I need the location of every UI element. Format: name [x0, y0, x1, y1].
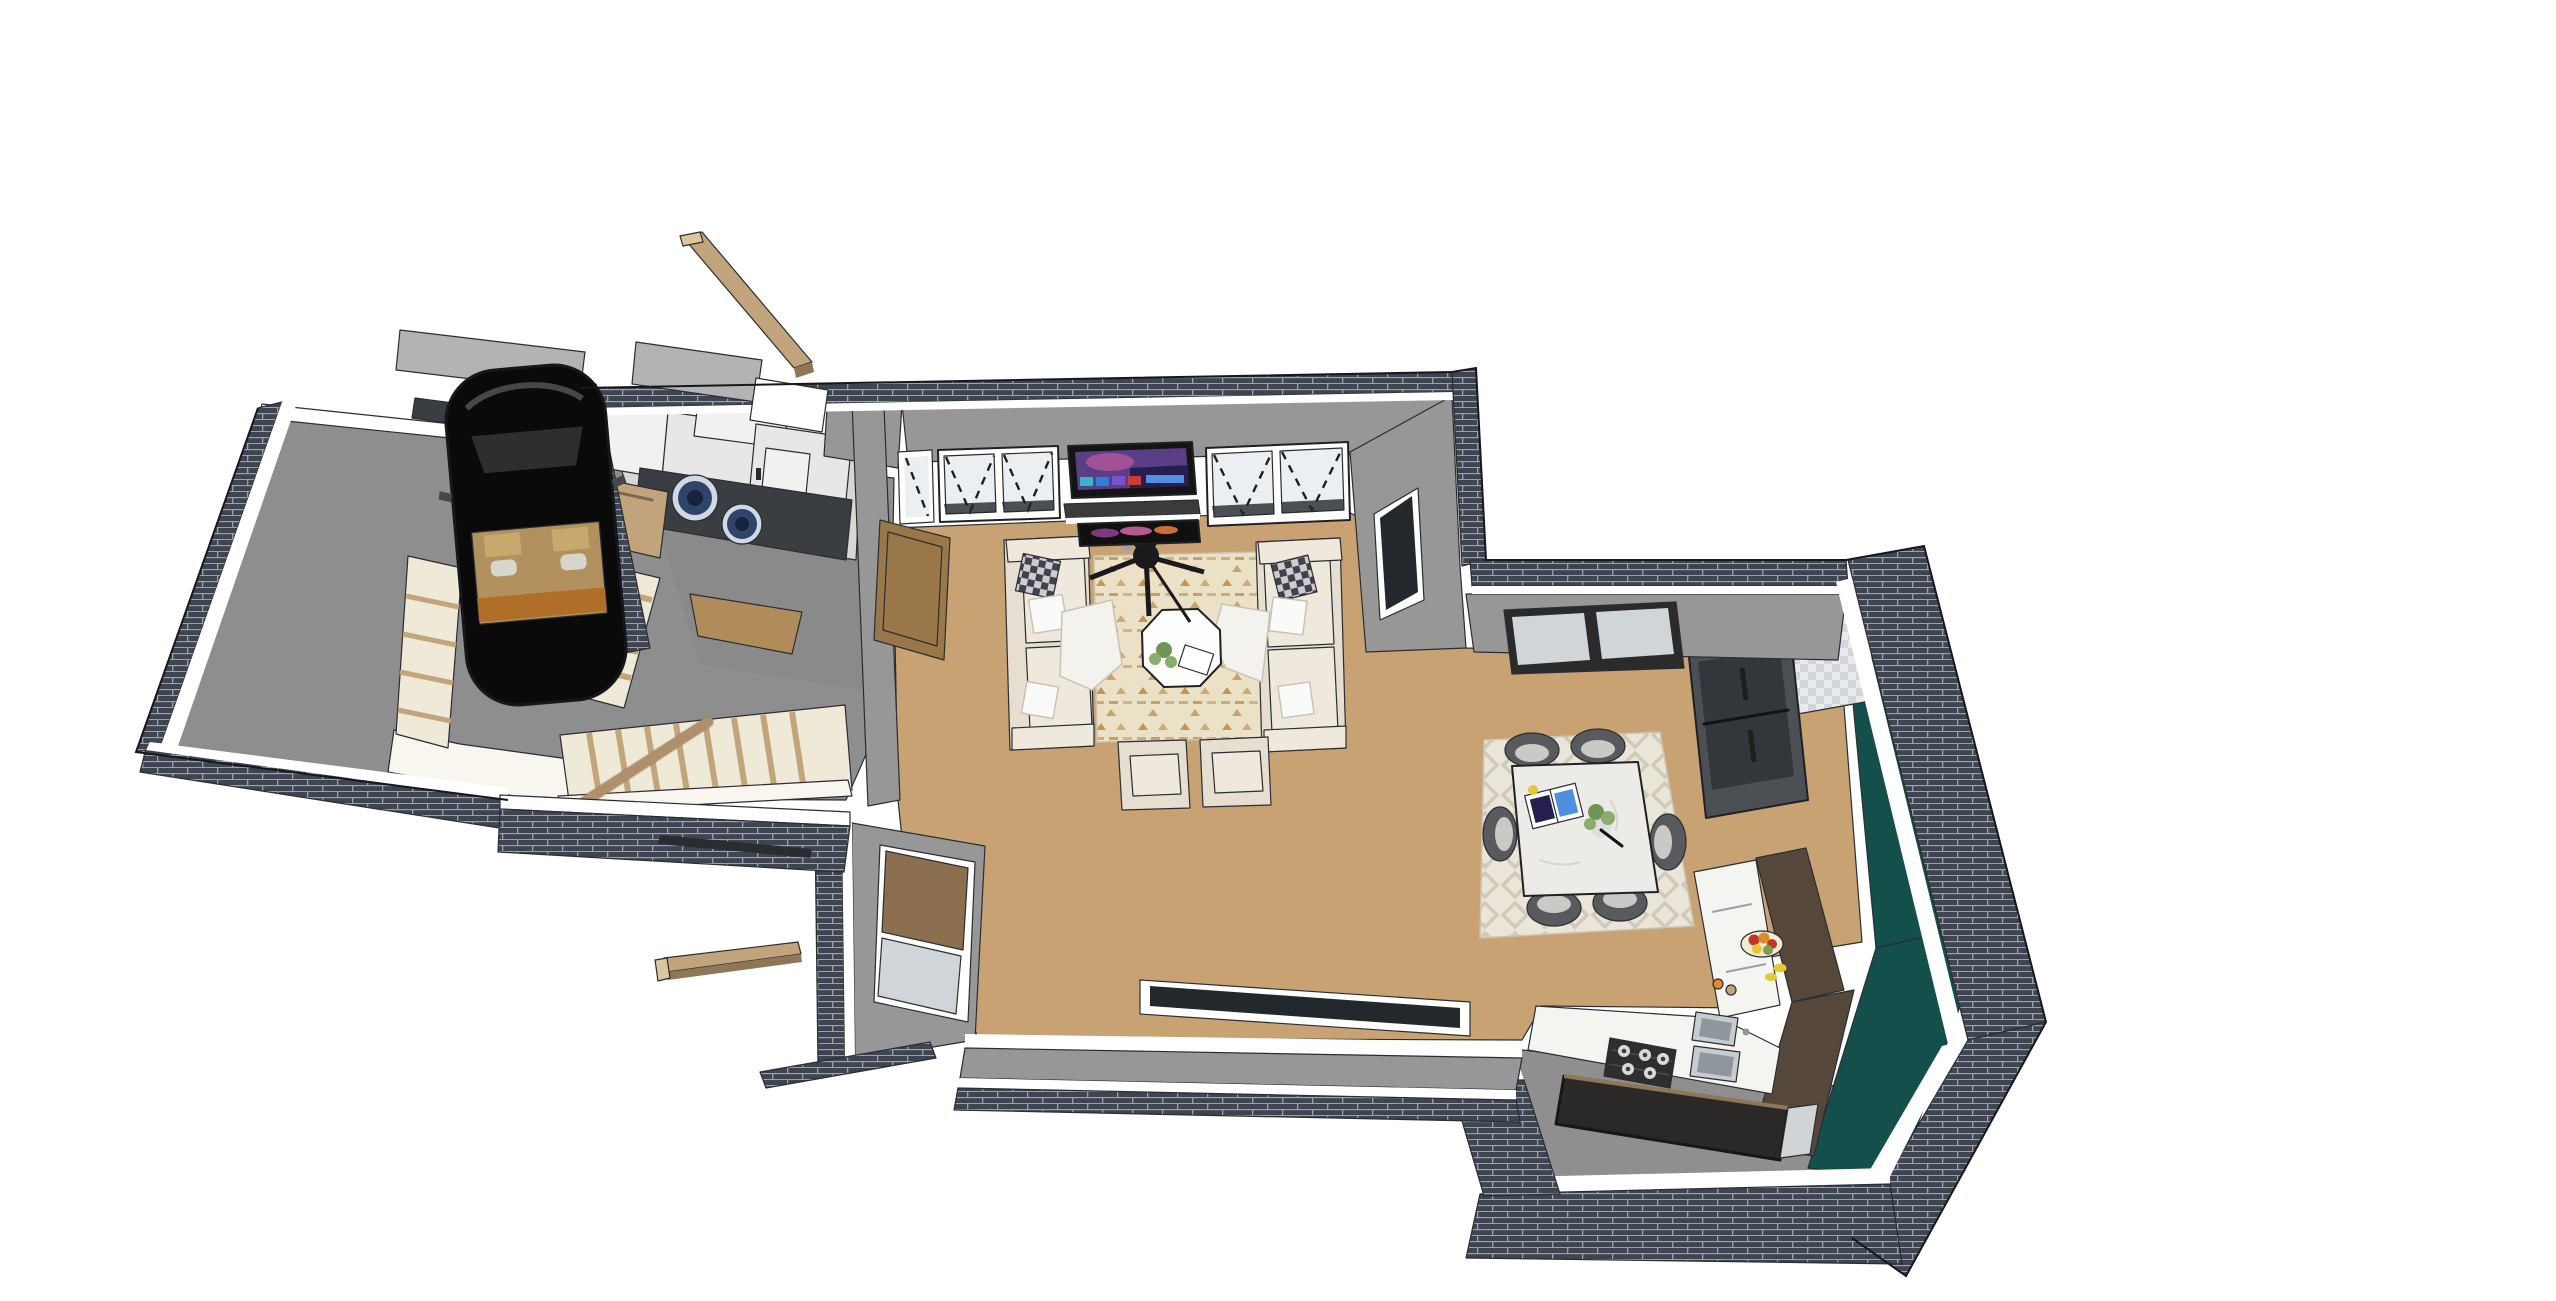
chair-seat — [1581, 740, 1615, 758]
spice-jar-1 — [1713, 979, 1723, 989]
dining-north-brick — [1470, 560, 1848, 586]
dining-window-glass — [1512, 613, 1590, 665]
dining-north-trim — [1472, 586, 1848, 594]
beam-top-face — [682, 232, 812, 368]
lemon-loose-2 — [1765, 973, 1777, 981]
car-seatback-left — [484, 532, 522, 557]
fridge-door — [1698, 648, 1794, 790]
burner-center — [1622, 1049, 1627, 1054]
tv-app-tile — [1128, 476, 1141, 485]
window-partial-left — [898, 450, 934, 524]
flame-pink — [1120, 527, 1152, 536]
fruit-lemon — [1752, 944, 1762, 954]
window-group-left — [938, 446, 1060, 522]
spice-jar-2 — [1726, 985, 1736, 995]
window-group-right — [1206, 442, 1350, 526]
armchair-cushion — [1212, 751, 1263, 793]
flame-orange — [1154, 526, 1178, 534]
car-headrest-right — [560, 553, 587, 571]
kitchen-south-brick — [1466, 1184, 1902, 1264]
flame-purple — [1091, 529, 1119, 538]
armchair-cushion — [1130, 754, 1181, 796]
roller-blind — [882, 851, 968, 950]
tv-app-tile — [1080, 477, 1093, 486]
chair-seat — [1537, 895, 1571, 913]
washer — [672, 475, 718, 521]
beam-end-cap — [655, 958, 670, 981]
window-sill-dark — [1002, 500, 1054, 512]
tv-wall-unit — [1064, 442, 1200, 546]
roof-beam-bottom — [655, 942, 802, 981]
dining-chair-right — [1650, 814, 1686, 870]
dining-chair-left — [1483, 807, 1517, 861]
burner-center — [1643, 1053, 1648, 1058]
plaid-pillow — [1015, 553, 1060, 598]
dryer-center — [735, 517, 749, 531]
table-plant-3 — [1165, 656, 1177, 668]
tv-app-tile — [1112, 476, 1125, 485]
fruit-apple-red — [1749, 935, 1760, 946]
armchair-right — [1200, 737, 1271, 807]
car-seatback-right — [552, 526, 590, 551]
chair-seat — [1495, 817, 1513, 851]
window-sill-dark — [944, 502, 996, 514]
tv-app-tile — [1096, 477, 1109, 486]
dining-window-glass — [1596, 608, 1674, 659]
washer-center — [687, 490, 703, 506]
fruit-apple-green — [1763, 945, 1773, 955]
sofa-armrest — [1264, 726, 1346, 752]
octagon-coffee-table — [1142, 609, 1221, 687]
throw-pillow — [1269, 597, 1307, 635]
chair-seat — [1515, 744, 1549, 762]
throw-pillow — [1278, 682, 1314, 718]
throw-pillow — [1021, 681, 1058, 718]
car-headrest-left — [490, 559, 517, 577]
dining-chair-top-2 — [1571, 729, 1625, 763]
sink-faucet — [1743, 1029, 1750, 1036]
burner-center — [1626, 1067, 1631, 1072]
table-plant-2 — [1149, 653, 1161, 665]
lemon-on-table — [1528, 785, 1538, 795]
coffee-table-top — [1142, 609, 1221, 687]
fan-hub — [1133, 543, 1159, 569]
tv-app-bar — [1146, 475, 1184, 483]
floorplan-3d-render — [0, 0, 2556, 1301]
plaid-pillow — [1271, 555, 1317, 601]
burner-center — [1661, 1057, 1666, 1062]
burner-center — [1648, 1071, 1653, 1076]
laundry-faucet — [756, 468, 761, 480]
lemon-loose-1 — [1774, 964, 1787, 973]
chair-seat — [1654, 825, 1672, 859]
plant-leaves-3 — [1584, 818, 1596, 830]
plant-leaves-2 — [1601, 811, 1615, 825]
tv-screen-clouds — [1086, 453, 1134, 471]
dryer — [722, 504, 762, 544]
sofa-armrest — [1012, 724, 1094, 750]
armchair-left — [1118, 740, 1190, 810]
dining-chair-top-1 — [1505, 733, 1559, 767]
